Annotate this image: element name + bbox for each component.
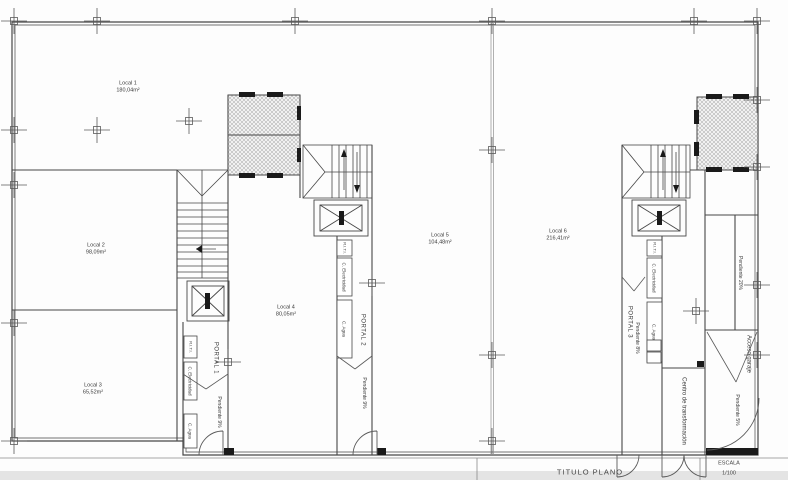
local-area: 80,05m² xyxy=(276,311,296,318)
local-name: Local 4 xyxy=(276,304,296,311)
stair-portal-3 xyxy=(622,145,690,198)
local-6-label: Local 6 216,41m² xyxy=(546,228,569,241)
title-block-lines xyxy=(0,458,788,480)
transformer-label: Centro de transformación xyxy=(679,377,686,445)
portal-1-door xyxy=(199,431,223,455)
portal-2-slope-label: Pendiente 9% xyxy=(361,377,367,408)
electricity-label-portal-1: C. Electricidad xyxy=(187,366,192,395)
floor-plan-sheet: Local 1 180,04m² Local 2 98,09m² Local 3… xyxy=(0,0,788,480)
local-name: Local 6 xyxy=(546,228,569,235)
portal-1-label: PORTAL 1 xyxy=(211,342,218,374)
service-cupboards xyxy=(184,240,662,448)
local-area: 98,09m² xyxy=(86,249,106,256)
garage-slope-label: Pendiente 5% xyxy=(734,394,740,425)
scale-label: ESCALA xyxy=(718,461,740,468)
garage-access-label: Acceso garaje xyxy=(744,335,751,373)
local-3-label: Local 3 65,52m² xyxy=(83,382,103,395)
stair-portal-1 xyxy=(177,170,228,278)
portal-3-slope-label: Pendiente 8% xyxy=(634,322,640,353)
local-area: 180,04m² xyxy=(116,87,139,94)
patio-hatch-1 xyxy=(228,95,300,175)
local-area: 104,48m² xyxy=(428,239,451,246)
local-name: Local 5 xyxy=(428,232,451,239)
riti-label-portal-2: R.I.T.I. xyxy=(342,242,347,254)
stair-portal-2 xyxy=(303,145,372,198)
elevator-portal-3 xyxy=(632,200,686,236)
local-4-label: Local 4 80,05m² xyxy=(276,304,296,317)
riti-label-portal-3: R.I.T.I. xyxy=(652,242,657,254)
sheet-title-label: TITULO PLANO xyxy=(557,468,623,477)
portal-3-label: PORTAL 3 xyxy=(625,306,632,338)
electricity-label-portal-2: C. Electricidad xyxy=(341,262,346,291)
portal-2-door xyxy=(353,431,377,455)
garage-door-swing xyxy=(707,398,759,450)
local-5-label: Local 5 104,48m² xyxy=(428,232,451,245)
water-label-portal-1: C. Agua xyxy=(187,423,192,439)
door-swings xyxy=(199,398,759,477)
electricity-label-portal-3: C. Electricidad xyxy=(651,263,656,292)
local-name: Local 3 xyxy=(83,382,103,389)
local-name: Local 2 xyxy=(86,242,106,249)
ramp-lines xyxy=(183,277,757,389)
ramp-slope-label: Pendiente 20% xyxy=(737,256,743,290)
riti-label-portal-1: R.I.T.I. xyxy=(188,341,193,353)
scale-value: 1/100 xyxy=(722,471,736,478)
patio-hatch-2 xyxy=(697,97,758,170)
local-area: 216,41m² xyxy=(546,235,569,242)
garage-door-leaf xyxy=(706,448,758,455)
floor-plan-canvas xyxy=(0,0,788,480)
water-label-portal-2: C. Agua xyxy=(341,321,346,337)
portal-2-label: PORTAL 2 xyxy=(358,314,365,346)
local-2-label: Local 2 98,09m² xyxy=(86,242,106,255)
elevator-portal-2 xyxy=(314,200,368,236)
portal-1-slope-label: Pendiente 9% xyxy=(216,396,222,427)
party-wall-grid-line xyxy=(491,22,494,455)
elevator-portal-1 xyxy=(187,281,229,321)
local-1-label: Local 1 180,04m² xyxy=(116,80,139,93)
local-area: 65,52m² xyxy=(83,389,103,396)
local-name: Local 1 xyxy=(116,80,139,87)
water-label-portal-3: C. Agua xyxy=(651,324,656,340)
